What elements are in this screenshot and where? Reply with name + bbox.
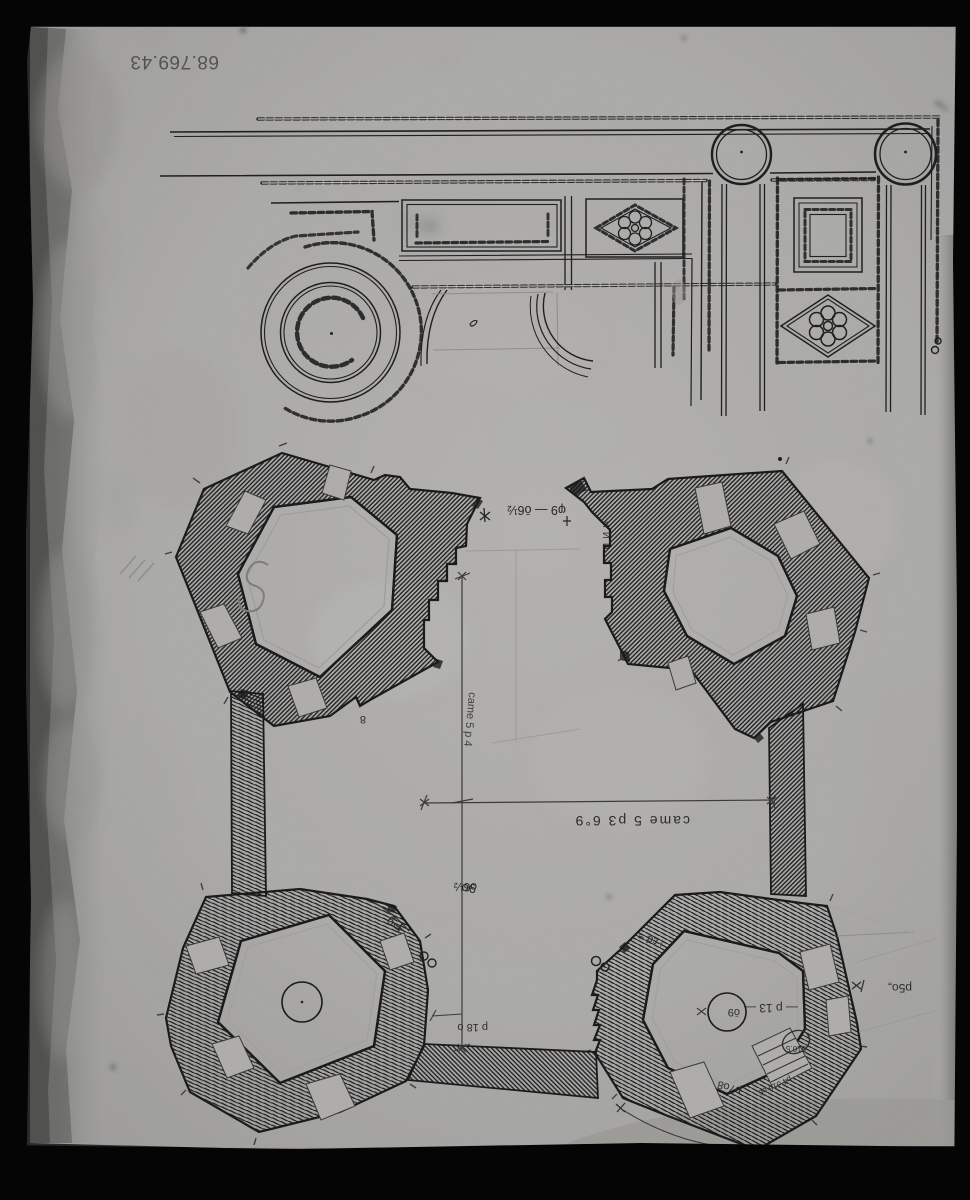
svg-text:ō9: ō9 bbox=[728, 1006, 740, 1018]
svg-text:68.769.43: 68.769.43 bbox=[130, 51, 219, 72]
svg-text:came 5 p3 6°9: came 5 p3 6°9 bbox=[574, 813, 690, 829]
svg-text:o6½: o6½ bbox=[454, 880, 477, 894]
svg-text:φ9 — ō6½: φ9 — ō6½ bbox=[507, 503, 566, 517]
svg-text:8: 8 bbox=[360, 713, 366, 725]
svg-text:910.5: 910.5 bbox=[785, 1044, 806, 1053]
svg-text:p 18 o: p 18 o bbox=[457, 1021, 488, 1033]
svg-text:— p 13 —: — p 13 — bbox=[744, 1001, 798, 1015]
svg-text:И И И: И И И bbox=[601, 521, 611, 550]
svg-text:p5o„: p5o„ bbox=[888, 981, 912, 995]
